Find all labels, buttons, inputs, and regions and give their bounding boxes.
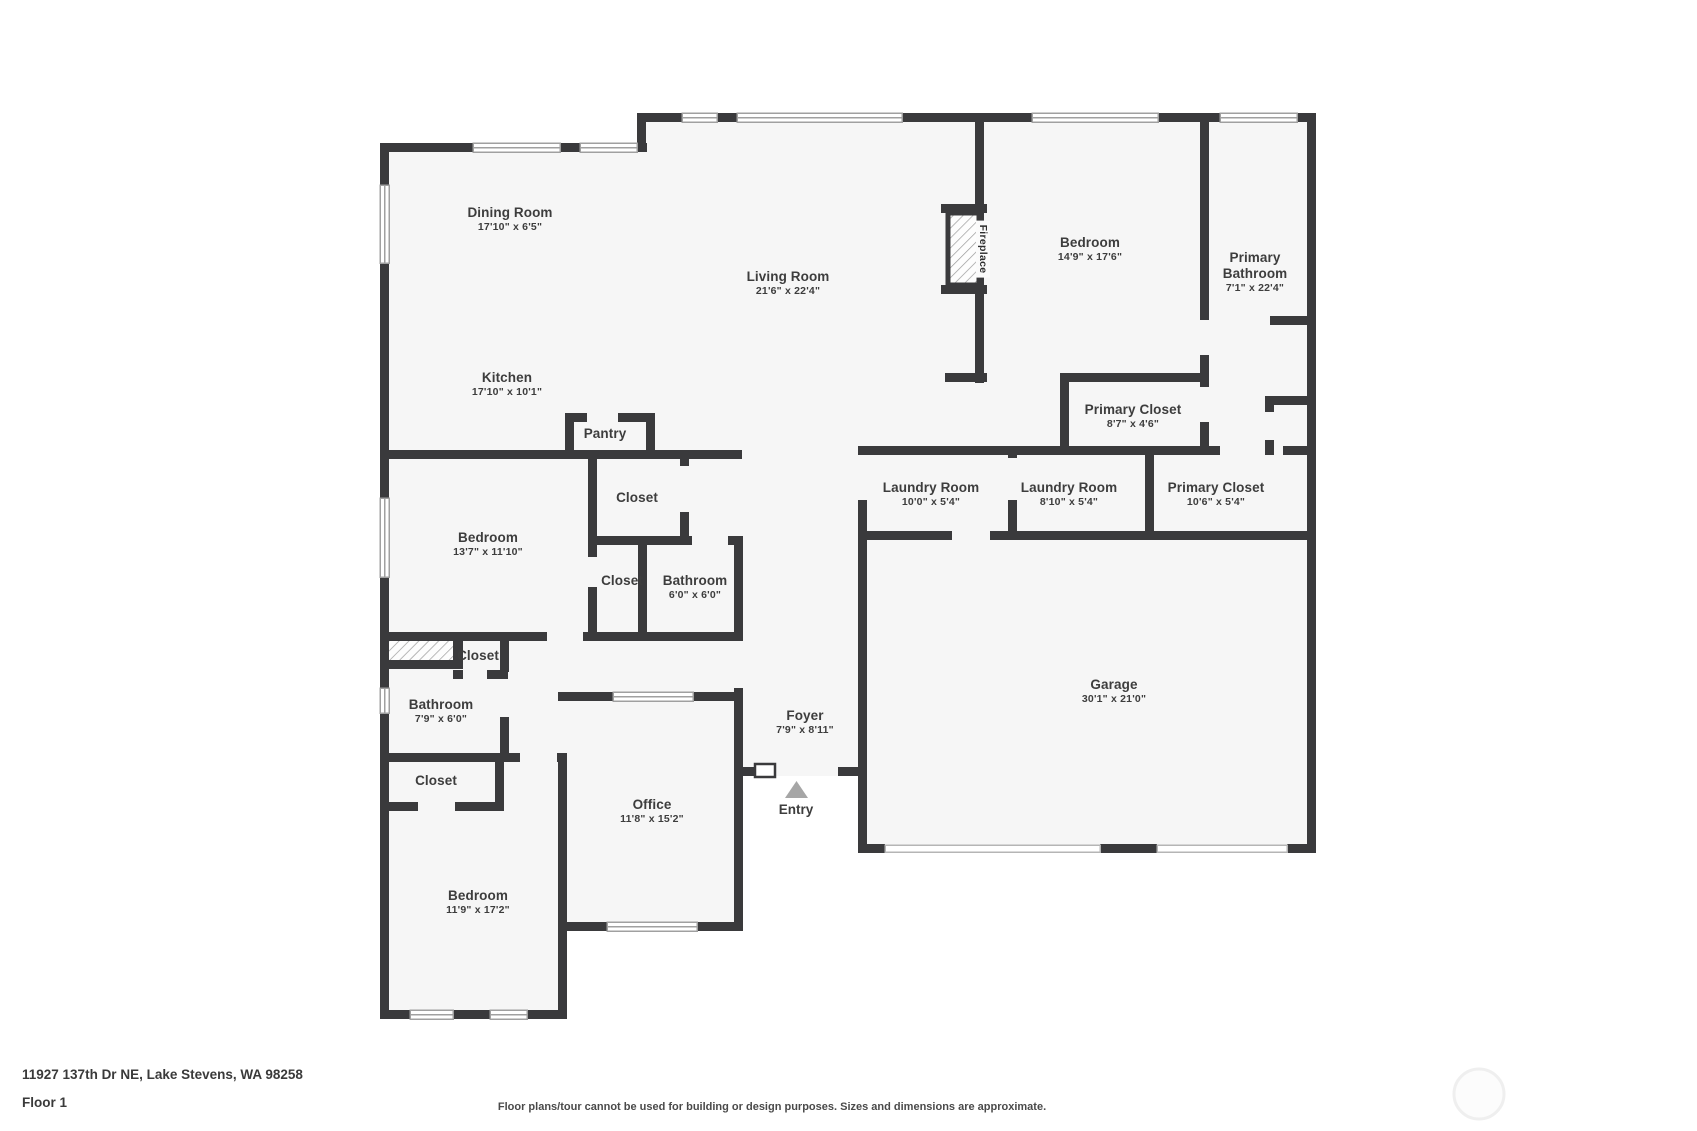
room-label-foyer: Foyer 7'9" x 8'11" (776, 708, 834, 736)
entry-label: Entry (779, 802, 814, 817)
room-label-bedroom-primary: Bedroom 14'9" x 17'6" (1058, 235, 1122, 263)
floor-label: Floor 1 (22, 1095, 67, 1110)
floor-plan-page: Dining Room 17'10" x 6'5" Kitchen 17'10"… (0, 0, 1697, 1131)
room-label-primary-bathroom: Primary Bathroom 7'1" x 22'4" (1209, 250, 1301, 294)
room-label-closet-mid: Closet (601, 573, 643, 589)
address-text: 11927 137th Dr NE, Lake Stevens, WA 9825… (22, 1067, 303, 1082)
room-label-bathroom-hall: Bathroom 6'0" x 6'0" (663, 573, 728, 601)
room-labels: Dining Room 17'10" x 6'5" Kitchen 17'10"… (0, 0, 1697, 1131)
room-label-closet-lower: Closet (415, 773, 457, 789)
disclaimer-text: Floor plans/tour cannot be used for buil… (498, 1101, 1046, 1113)
room-label-primary-closet-upper: Primary Closet 8'7" x 4'6" (1085, 402, 1182, 430)
room-label-bedroom-mid: Bedroom 13'7" x 11'10" (453, 530, 523, 558)
room-label-primary-closet-lower: Primary Closet 10'6" x 5'4" (1168, 480, 1265, 508)
room-label-laundry-room-2: Laundry Room 8'10" x 5'4" (1021, 480, 1117, 508)
room-label-dining-room: Dining Room 17'10" x 6'5" (467, 205, 552, 233)
room-label-laundry-room-1: Laundry Room 10'0" x 5'4" (883, 480, 979, 508)
room-label-bathroom-left: Bathroom 7'9" x 6'0" (409, 697, 474, 725)
fireplace-label: Fireplace (976, 221, 990, 278)
room-label-kitchen: Kitchen 17'10" x 10'1" (472, 370, 542, 398)
room-label-office: Office 11'8" x 15'2" (620, 797, 684, 825)
room-label-pantry: Pantry (584, 426, 627, 442)
room-label-bedroom-bottom: Bedroom 11'9" x 17'2" (446, 888, 510, 916)
room-label-closet-hall: Closet (616, 490, 658, 506)
room-label-living-room: Living Room 21'6" x 22'4" (747, 269, 830, 297)
room-label-garage: Garage 30'1" x 21'0" (1082, 677, 1146, 705)
room-label-closet-small: Closet (457, 648, 499, 664)
